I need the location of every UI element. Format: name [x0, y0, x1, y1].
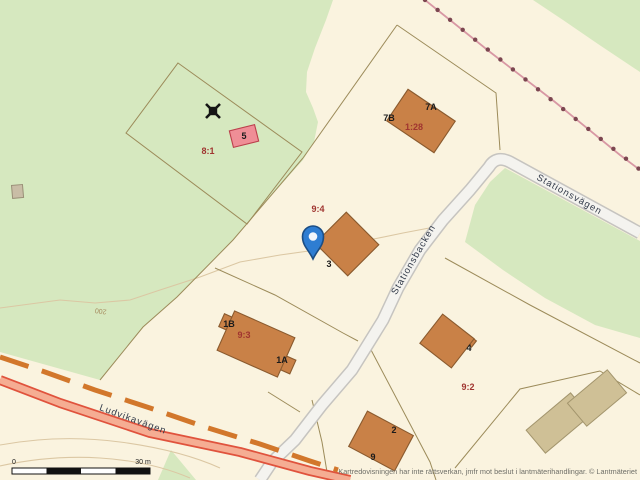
house-number-7b: 7B [383, 113, 395, 123]
house-number-1a: 1A [276, 355, 288, 365]
location-pin-center [309, 232, 318, 241]
house-number-9: 9 [370, 452, 375, 462]
parcel-label-1-28: 1:28 [405, 122, 423, 132]
parcel-label-9-4: 9:4 [311, 204, 324, 214]
map-canvas[interactable]: 8:1 9:4 1:28 9:3 9:2 5 7A 7B 3 1B 1A 4 2… [0, 0, 640, 480]
parcel-label-9-2: 9:2 [461, 382, 474, 392]
house-number-2: 2 [391, 425, 396, 435]
house-number-1b: 1B [223, 319, 235, 329]
house-number-4: 4 [466, 343, 471, 353]
building-small-west [11, 184, 23, 198]
house-number-7a: 7A [425, 102, 437, 112]
contour-elevation-label: 200 [94, 306, 107, 314]
parcel-label-8-1: 8:1 [201, 146, 214, 156]
attribution: Kartredovisningen har inte rättsverkan, … [338, 467, 637, 476]
scale-bar-start-label: 0 [12, 459, 16, 466]
parcel-label-9-3: 9:3 [237, 330, 250, 340]
scale-bar-end-label: 30 m [135, 459, 151, 466]
house-number-3: 3 [326, 259, 331, 269]
house-number-5: 5 [241, 131, 246, 141]
